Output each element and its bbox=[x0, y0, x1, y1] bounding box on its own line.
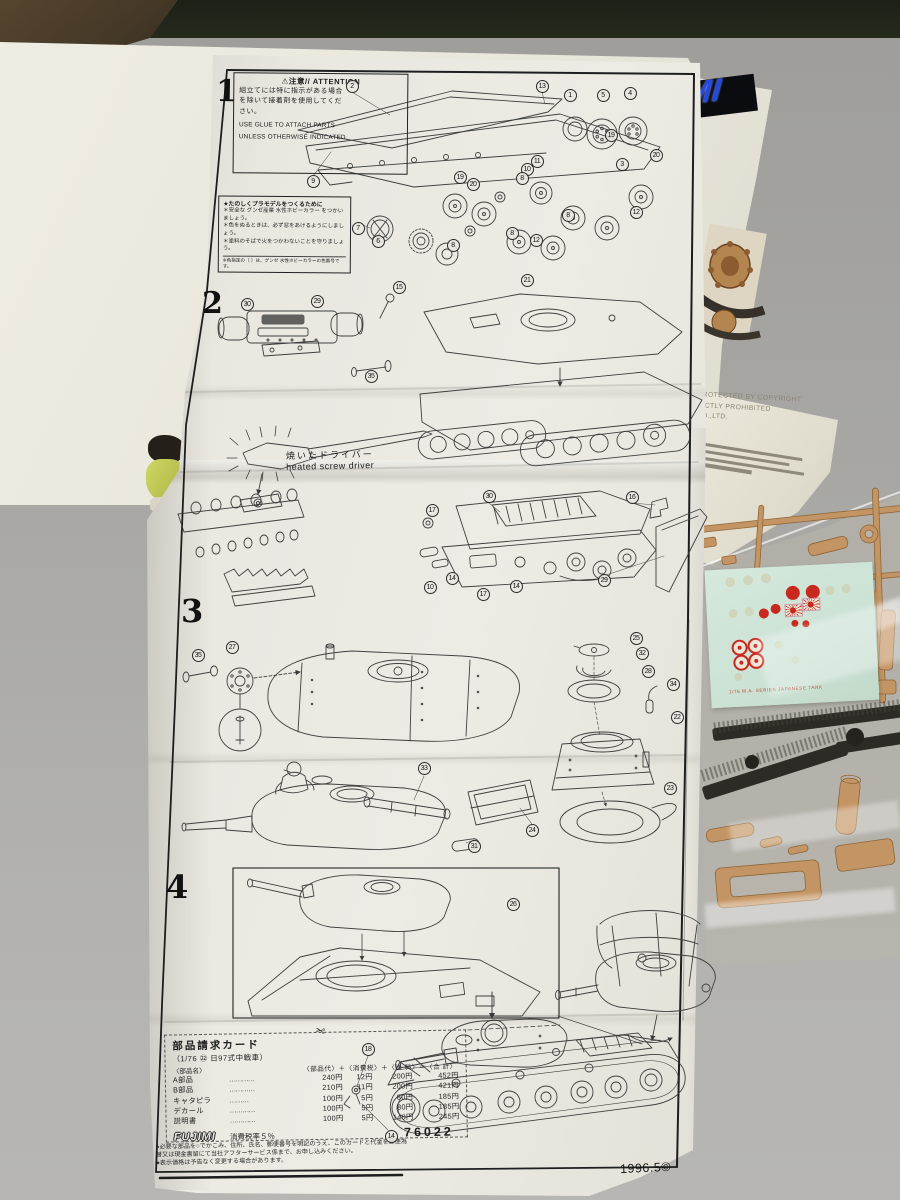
step-number-3: 3 bbox=[181, 592, 203, 630]
photo-of-model-kit-instructions: MI PROTECTED BY COPYRIGHT RICTLY PROHIBI… bbox=[0, 0, 900, 1200]
step3-hull-diagram bbox=[419, 491, 707, 592]
assembly-diagrams bbox=[0, 0, 900, 1200]
step-number-4: 4 bbox=[166, 868, 188, 906]
screwdriver-label: 焼いたドライバー heated screw driver bbox=[286, 447, 375, 472]
attention-en-line: USE GLUE TO ATTACH PARTS bbox=[239, 120, 402, 131]
screwdriver-label-en: heated screw driver bbox=[286, 460, 374, 472]
attention-jp-line: を除いて接着剤を使用してくだ bbox=[239, 97, 402, 109]
road-wheels bbox=[436, 182, 653, 265]
copyright-date: 1996.5© bbox=[620, 1160, 672, 1176]
attention-en-line: UNLESS OTHERWISE INDICATED. bbox=[239, 133, 402, 144]
fold-creases bbox=[165, 384, 700, 1022]
small-parts-diagram bbox=[178, 489, 315, 606]
tips-bullet: ＊色をぬるときは、必ず窓をあけるようにしましょう。 bbox=[223, 223, 346, 239]
step-number-2: 2 bbox=[202, 286, 223, 321]
step4-diagram bbox=[233, 868, 715, 1044]
attention-jp-line: さい。 bbox=[239, 107, 402, 119]
kit-number: 76022 bbox=[404, 1124, 454, 1139]
attention-notice-box: ⚠注意// ATTENTION 組立てには特に指示がある場合 を除いて接着剤を使… bbox=[233, 72, 409, 175]
step2-diagram bbox=[218, 294, 702, 467]
tips-bullet: ＊塗料のそばで火をつかわないことを守りましょう。 bbox=[223, 238, 346, 254]
parts-request-card: ✂ 部品請求カード （1/76 ㉒ 日97式中戦車） 〈部品名〉 〈部品代〉＋〈… bbox=[164, 1029, 468, 1142]
parts-card-rows: A部品…………240円12円200円452円B部品…………210円11円200円… bbox=[173, 1071, 460, 1128]
tips-footnote: ※色指定の〔 〕は、グンゼ 水性ホビーカラーの色番号です。 bbox=[223, 256, 346, 271]
painting-tips-box: ★たのしくプラモデルをつくるために ＊安全な グンゼ産業 水性ホビーカラー をつ… bbox=[218, 196, 352, 274]
step3-turret-diagram bbox=[182, 644, 676, 852]
step-number-1: 1 bbox=[216, 74, 237, 109]
fujimi-logo: FUJIMI bbox=[174, 1131, 216, 1144]
tips-bullet: ＊安全な グンゼ産業 水性ホビーカラー をつかいましょう。 bbox=[223, 208, 346, 224]
